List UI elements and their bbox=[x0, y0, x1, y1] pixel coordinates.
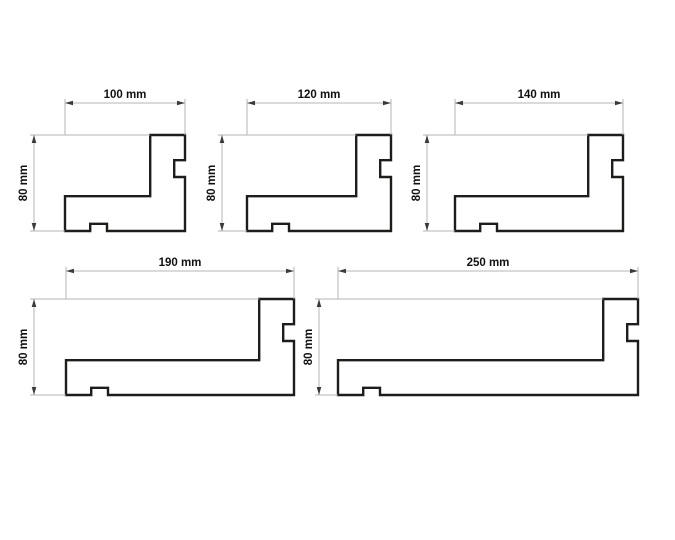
height-dimension-label: 80 mm bbox=[18, 329, 30, 365]
profile-100mm: 100 mm80 mm bbox=[18, 89, 185, 231]
height-dimension-label: 80 mm bbox=[18, 165, 30, 201]
width-arrow-right bbox=[630, 269, 638, 274]
profile-250mm: 250 mm80 mm bbox=[303, 257, 638, 395]
profile-140mm: 140 mm80 mm bbox=[411, 89, 623, 231]
profile-outline bbox=[338, 299, 638, 395]
height-arrow-bottom bbox=[32, 223, 37, 231]
width-arrow-right bbox=[177, 101, 185, 106]
diagram-canvas: 100 mm80 mm120 mm80 mm140 mm80 mm190 mm8… bbox=[0, 0, 675, 540]
width-dimension-label: 120 mm bbox=[298, 89, 341, 101]
width-arrow-left bbox=[65, 101, 73, 106]
width-arrow-right bbox=[615, 101, 623, 106]
height-arrow-bottom bbox=[317, 387, 322, 395]
width-arrow-left bbox=[247, 101, 255, 106]
width-arrow-right bbox=[286, 269, 294, 274]
width-arrow-left bbox=[338, 269, 346, 274]
height-arrow-top bbox=[32, 135, 37, 143]
profile-outline bbox=[247, 135, 391, 231]
height-arrow-top bbox=[220, 135, 225, 143]
profile-120mm: 120 mm80 mm bbox=[206, 89, 391, 231]
width-arrow-right bbox=[383, 101, 391, 106]
width-arrow-left bbox=[455, 101, 463, 106]
width-dimension-label: 250 mm bbox=[467, 257, 510, 269]
profile-outline bbox=[65, 135, 185, 231]
height-dimension-label: 80 mm bbox=[303, 329, 315, 365]
profile-190mm: 190 mm80 mm bbox=[18, 257, 294, 395]
height-arrow-top bbox=[425, 135, 430, 143]
height-arrow-bottom bbox=[32, 387, 37, 395]
width-dimension-label: 100 mm bbox=[104, 89, 147, 101]
width-dimension-label: 140 mm bbox=[518, 89, 561, 101]
technical-diagram: 100 mm80 mm120 mm80 mm140 mm80 mm190 mm8… bbox=[0, 0, 675, 540]
width-dimension-label: 190 mm bbox=[159, 257, 202, 269]
height-arrow-top bbox=[317, 299, 322, 307]
profile-outline bbox=[455, 135, 623, 231]
height-dimension-label: 80 mm bbox=[206, 165, 218, 201]
height-arrow-bottom bbox=[220, 223, 225, 231]
height-dimension-label: 80 mm bbox=[411, 165, 423, 201]
profile-outline bbox=[66, 299, 294, 395]
height-arrow-top bbox=[32, 299, 37, 307]
height-arrow-bottom bbox=[425, 223, 430, 231]
width-arrow-left bbox=[66, 269, 74, 274]
